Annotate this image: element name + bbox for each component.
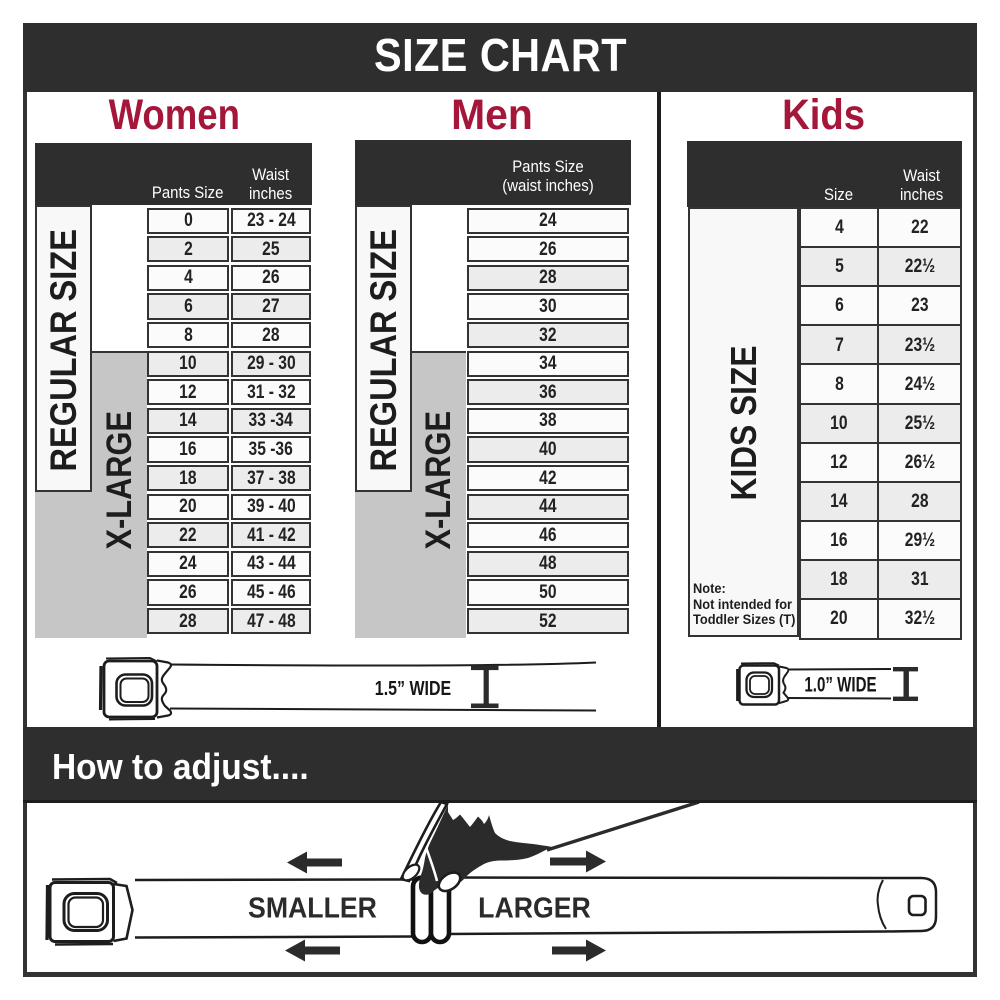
svg-text:SMALLER: SMALLER <box>248 891 377 923</box>
svg-text:1.0” WIDE: 1.0” WIDE <box>804 672 876 696</box>
svg-text:1.5” WIDE: 1.5” WIDE <box>375 676 451 699</box>
svg-text:LARGER: LARGER <box>478 891 591 923</box>
